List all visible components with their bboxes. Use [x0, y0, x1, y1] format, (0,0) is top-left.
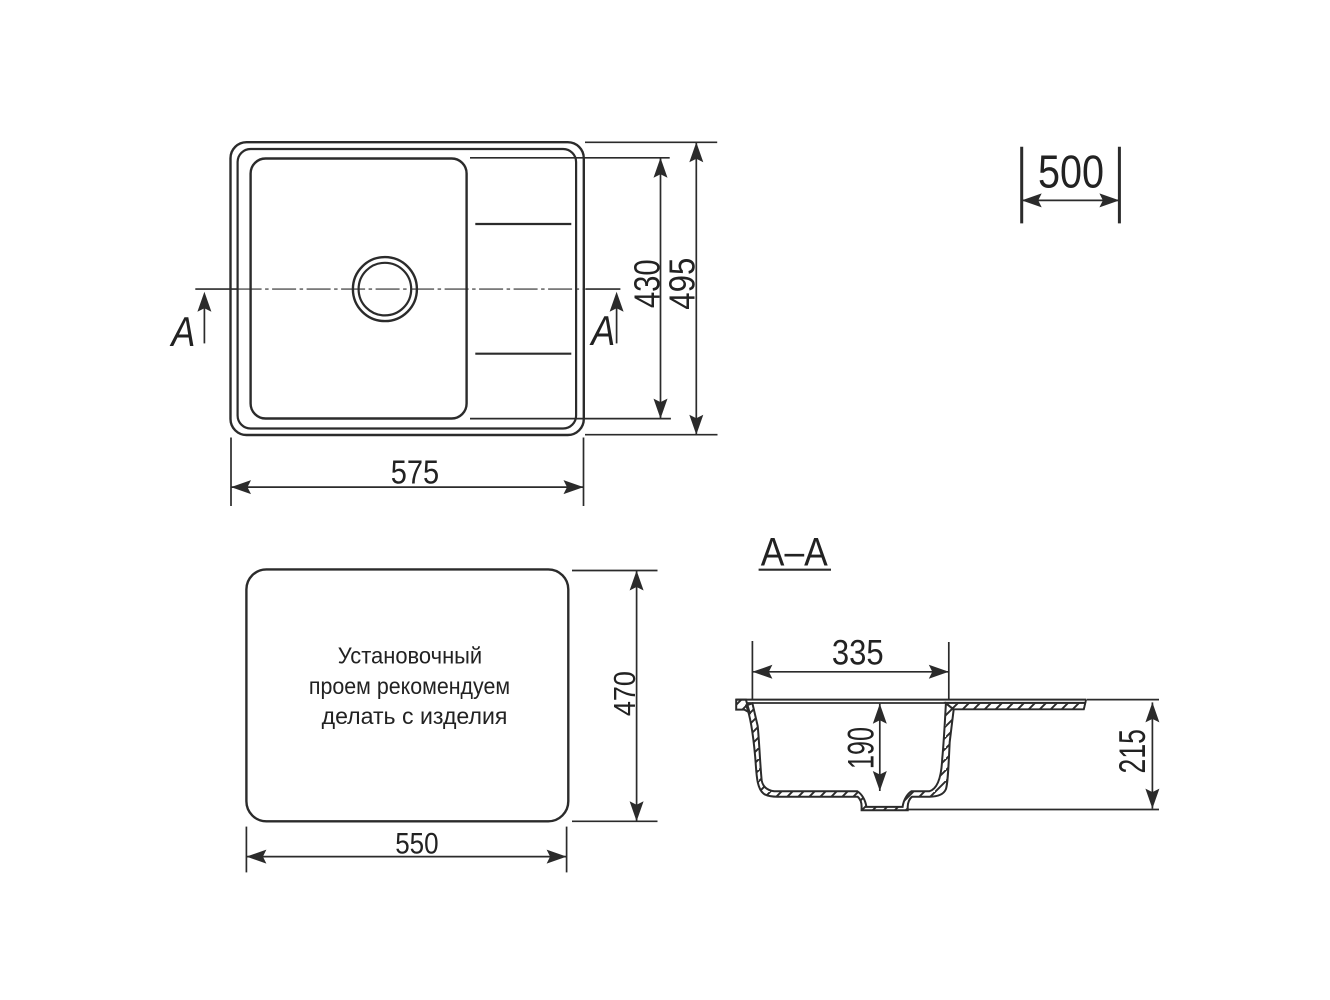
svg-text:335: 335 — [832, 634, 884, 673]
svg-text:проем рекомендуем: проем рекомендуем — [309, 673, 510, 699]
svg-text:190: 190 — [841, 727, 882, 769]
svg-text:A: A — [589, 307, 616, 354]
svg-text:215: 215 — [1112, 729, 1153, 773]
svg-text:470: 470 — [607, 671, 642, 716]
svg-text:A: A — [169, 308, 196, 355]
svg-text:A–A: A–A — [761, 531, 828, 575]
svg-text:550: 550 — [395, 827, 438, 860]
svg-text:575: 575 — [391, 453, 439, 490]
svg-text:делать с изделия: делать с изделия — [322, 703, 508, 729]
svg-text:500: 500 — [1038, 145, 1104, 197]
svg-text:Установочный: Установочный — [338, 643, 482, 669]
svg-text:495: 495 — [662, 258, 703, 310]
